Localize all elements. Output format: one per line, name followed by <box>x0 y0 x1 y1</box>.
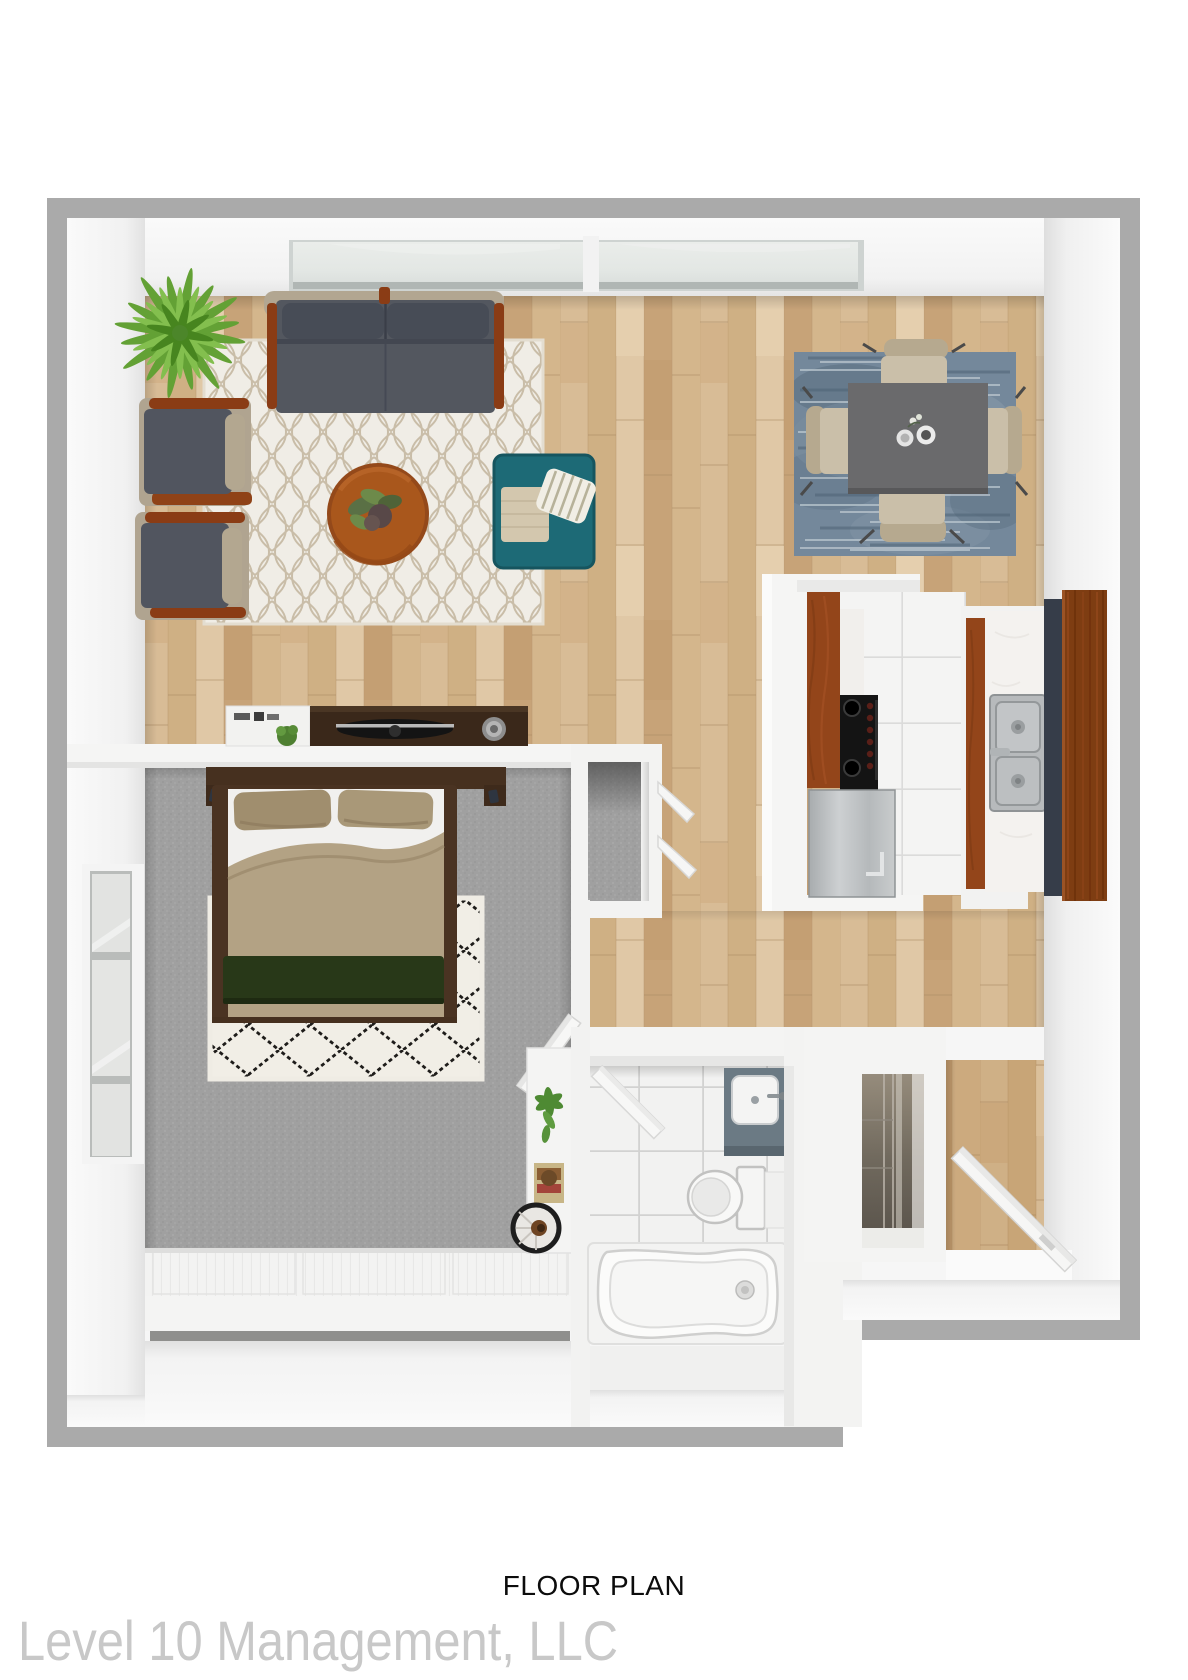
svg-text:FLOOR PLAN: FLOOR PLAN <box>503 1570 685 1601</box>
svg-text:Level 10 Management, LLC: Level 10 Management, LLC <box>18 1609 618 1672</box>
